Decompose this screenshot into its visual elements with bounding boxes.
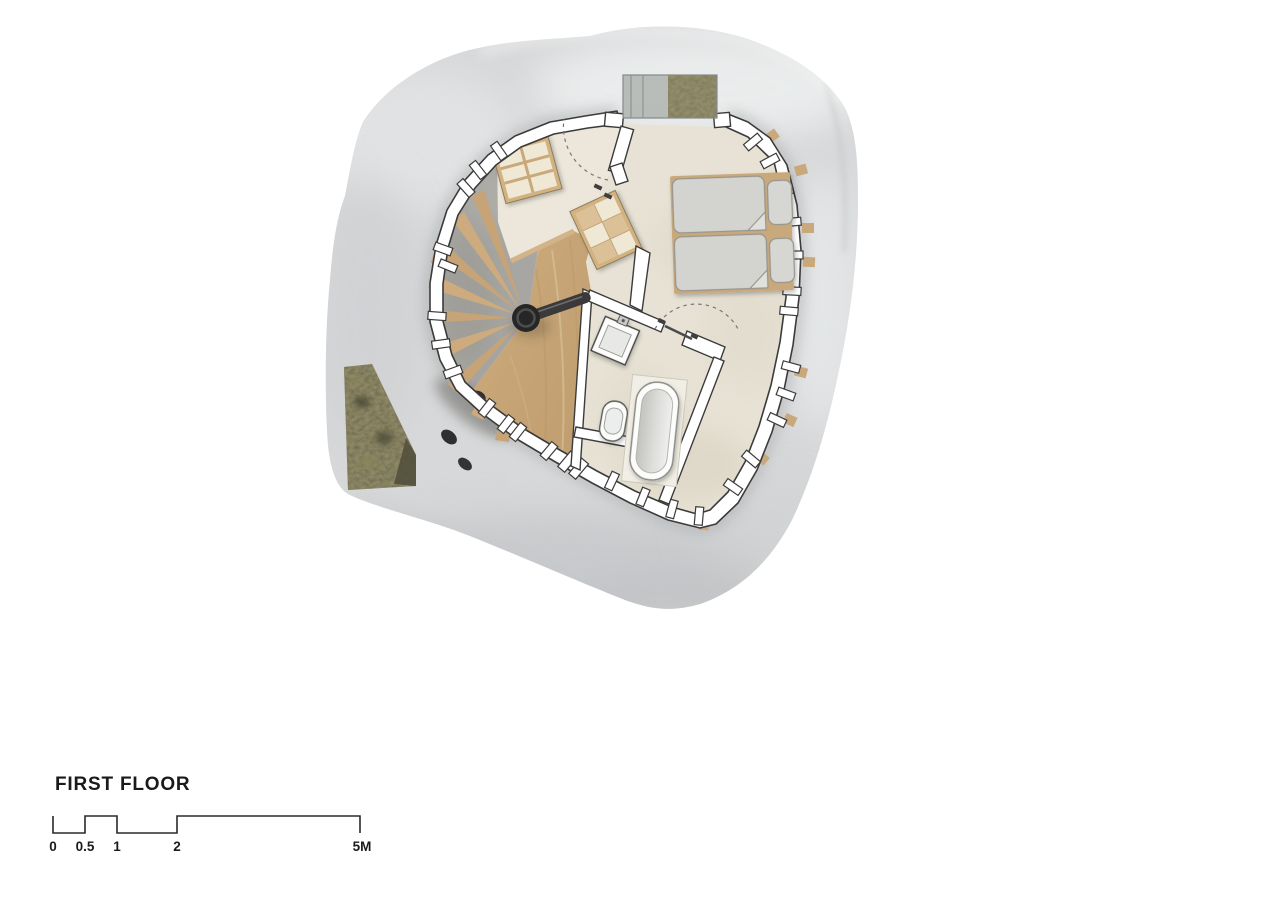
moss-clump <box>348 376 362 386</box>
scale-label-1: 1 <box>113 839 121 854</box>
moss-clump <box>358 456 378 468</box>
scale-label-5m: 5M <box>353 839 372 854</box>
scale-label-0: 0 <box>49 839 57 854</box>
bed-duvet <box>672 176 766 233</box>
stair-post <box>512 304 540 332</box>
moss-clump <box>375 431 393 445</box>
scale-label-2: 2 <box>173 839 181 854</box>
window-slit <box>780 306 799 316</box>
reveal-wedge <box>802 223 814 233</box>
window-slit <box>432 339 451 349</box>
floor-plan-page: FIRST FLOOR 0 0.5 1 2 5M <box>0 0 1280 905</box>
page-title: FIRST FLOOR <box>55 774 190 795</box>
window-slit <box>694 507 704 526</box>
bed-duvet <box>674 234 768 291</box>
bed-pillow <box>769 238 795 283</box>
entry-glazing <box>623 75 717 118</box>
bathtub <box>622 374 688 486</box>
twin-beds <box>670 172 795 294</box>
entry-moss-panel <box>668 75 717 118</box>
floor-plan-canvas: FIRST FLOOR 0 0.5 1 2 5M <box>0 0 1280 905</box>
moss-clump <box>354 396 370 408</box>
window-slit <box>428 311 447 320</box>
scale-label-05: 0.5 <box>76 839 95 854</box>
bed-pillow <box>767 180 793 225</box>
entry-glass-panel <box>623 75 672 118</box>
reveal-wedge <box>803 257 816 268</box>
